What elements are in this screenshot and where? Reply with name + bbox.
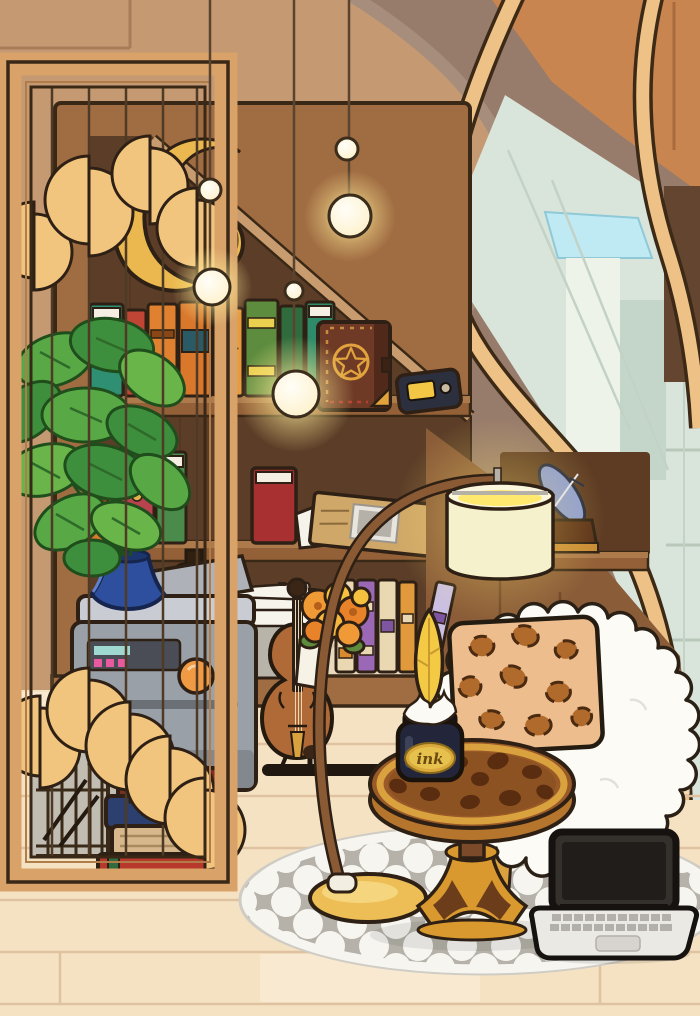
ink-jar-label: ink	[417, 750, 444, 768]
game-room-scene: ink	[0, 0, 700, 1016]
laptop[interactable]	[531, 832, 696, 964]
leopard-pillow[interactable]	[449, 616, 604, 754]
mini-radio[interactable]	[396, 368, 462, 413]
